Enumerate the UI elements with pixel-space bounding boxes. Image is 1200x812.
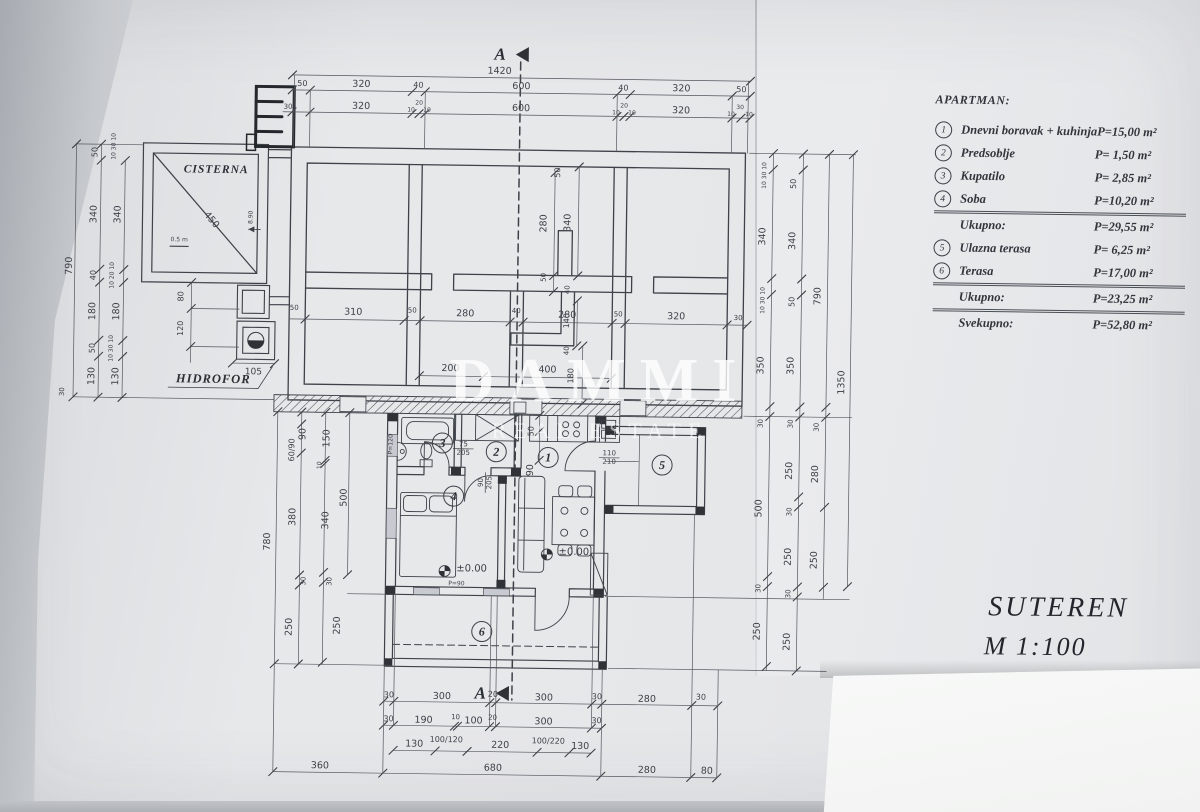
plan-scale: M 1:100: [984, 631, 1129, 663]
dim-label: 50: [736, 85, 746, 94]
dim-label: 120: [176, 321, 185, 336]
legend-row-number: 4: [934, 190, 951, 207]
dim-label: 30: [813, 423, 821, 432]
dim-label: 780: [262, 532, 273, 550]
dim-label: 80: [176, 291, 185, 301]
dim-label: 50: [789, 179, 798, 189]
dim-label: 30: [299, 577, 307, 586]
legend-row-label: Svekupno:: [958, 316, 1092, 333]
legend-row: Ukupno:P=23,25 m²: [933, 282, 1185, 312]
section-letter-bottom: A: [473, 683, 486, 702]
dim-label: 790: [64, 257, 75, 275]
fold-crease: [755, 0, 757, 676]
section-arrow-top: [516, 47, 529, 62]
room-number: 4: [450, 489, 457, 503]
stove-burner-icon: [563, 422, 569, 428]
dim-label: 340: [787, 232, 798, 250]
furniture: [395, 413, 619, 595]
plan-title: SUTEREN: [988, 591, 1129, 624]
dim-label: ±0.00: [558, 547, 589, 558]
closet-icon: [455, 414, 518, 441]
sink-icon: [397, 442, 406, 460]
dim-label: 280: [456, 308, 474, 319]
dim-label: 280: [638, 694, 656, 705]
room-number: 3: [438, 436, 445, 450]
legend-row-value: P=29,55 m²: [1094, 219, 1186, 235]
dim-label: 10 30 10: [107, 335, 114, 362]
dim-label: 30: [384, 690, 394, 699]
hydrophore-label: HIDROFOR: [175, 371, 251, 386]
stairs-detail: [246, 86, 294, 151]
svg-text:210: 210: [602, 458, 615, 466]
dim-label: 50: [540, 273, 548, 282]
dim-label: 30: [784, 589, 792, 598]
dim-label: 100: [464, 715, 482, 726]
legend-row-value: P= 1,50 m²: [1095, 147, 1187, 163]
dim-label: 10: [451, 713, 460, 721]
dim-label: 40: [618, 83, 628, 92]
dim-label: 100/120: [430, 735, 463, 744]
dim-label: 10: [316, 461, 323, 469]
dim-label: 40: [413, 81, 423, 90]
svg-text:205: 205: [457, 449, 470, 457]
dim-label: 680: [484, 763, 502, 774]
legend-row-number: [934, 216, 951, 233]
toilet-icon: [420, 460, 432, 467]
dim-label: 20: [488, 690, 498, 699]
dim-label: 340: [112, 205, 123, 223]
legend-row-number: [932, 314, 949, 331]
dim-label: 50: [297, 79, 307, 88]
dim-label: 100/220: [532, 736, 565, 745]
dim-label: 310: [344, 307, 362, 318]
dim-label: 250: [784, 462, 795, 480]
dim-label: 50: [787, 297, 796, 307]
legend-row-label: Kupatilo: [960, 169, 1094, 186]
dim-label: 130: [110, 367, 121, 385]
dim-label: 1420: [487, 66, 511, 77]
svg-text:205: 205: [485, 476, 493, 489]
dim-label: 1350: [836, 370, 847, 394]
dim-label: 105: [245, 367, 262, 377]
dim-label: 50: [90, 147, 99, 157]
dim-label: 30: [696, 693, 706, 702]
chair-icon: [559, 486, 573, 497]
dim-label: 50: [88, 343, 97, 353]
paper-bottom-edge: [0, 801, 840, 812]
dim-label: 180: [111, 302, 122, 320]
room-number: 5: [659, 458, 665, 472]
dim-label: 40: [512, 307, 521, 315]
dim-label: P=90: [448, 580, 465, 587]
legend-row-number: 6: [933, 262, 950, 279]
scanned-floor-plan-photo: A A: [0, 0, 1200, 812]
dim-label: 180: [87, 302, 98, 320]
dim-label: 250: [752, 622, 763, 640]
dim-label: 20: [488, 714, 497, 722]
legend-row-label: Ukupno:: [959, 290, 1093, 307]
dim-label: 20: [415, 100, 423, 107]
dim-label: 300: [535, 692, 553, 703]
legend-title: APARTMAN:: [935, 92, 1187, 111]
dim-label: 340: [757, 227, 768, 245]
dim-label: 10: [727, 111, 735, 118]
dim-label: 10 30 10: [110, 133, 117, 160]
legend-row-value: P= 2,85 m²: [1094, 170, 1186, 186]
section-letter-top: A: [493, 45, 506, 64]
dim-label: 130: [86, 367, 97, 385]
depth-arrow-icon: [248, 226, 254, 232]
svg-text:90: 90: [477, 478, 485, 487]
dim-label: 300: [534, 716, 552, 727]
dim-label: 30: [383, 714, 393, 723]
legend-row-value: P=15,00 m²: [1097, 125, 1187, 141]
dim-label: 340: [320, 511, 331, 529]
dim-label: 10: [745, 111, 753, 118]
legend-row-value: P=23,25 m²: [1093, 291, 1185, 307]
legend-row-label: Ulazna terasa: [959, 241, 1093, 258]
legend-row-value: P=52,80 m²: [1092, 317, 1184, 333]
room-number: 2: [492, 445, 499, 459]
dim-label: 350: [785, 357, 796, 375]
dim-label: 340: [562, 214, 573, 232]
door-size-label: 75205: [453, 440, 473, 457]
dim-label: 30: [592, 692, 602, 701]
sofa-icon: [518, 476, 545, 572]
legend-row: Ukupno:P=29,55 m²: [934, 210, 1186, 240]
dim-label: 20: [620, 102, 628, 109]
dim-label: 250: [783, 548, 794, 566]
cistern-label: CISTERNA: [184, 163, 249, 176]
table-icon: [552, 497, 595, 546]
dim-label: 300: [433, 691, 451, 702]
dim-label: 90: [525, 464, 536, 476]
dim-label: 250: [782, 633, 793, 651]
dim-label: 10: [407, 106, 415, 113]
dim-label: 50: [408, 306, 417, 314]
legend-row-value: P=10,20 m²: [1094, 193, 1186, 209]
dim-label: 40: [563, 285, 571, 294]
dim-label: 320: [352, 79, 370, 90]
dim-label: 320: [352, 101, 370, 112]
dim-label: 30: [757, 419, 765, 428]
legend-row-label: Dnevni boravak + kuhinja: [961, 123, 1097, 140]
legend: APARTMAN: 1Dnevni boravak + kuhinjaP=15,…: [932, 92, 1187, 337]
dim-label: 10 30 10: [759, 287, 766, 314]
legend-row-label: Terasa: [959, 264, 1093, 281]
dim-label: 320: [672, 83, 690, 94]
dim-label: 50: [614, 310, 623, 318]
dim-label: 280: [538, 214, 549, 232]
dim-label: 30: [58, 387, 66, 396]
room-number: 6: [479, 625, 485, 639]
dim-label: 10: [423, 107, 431, 114]
legend-row-label: Predsoblje: [961, 146, 1095, 163]
dim-label: 190: [414, 715, 432, 726]
svg-text:75: 75: [459, 440, 468, 448]
dim-label: 10 30 10: [761, 162, 768, 189]
dim-label: 80: [701, 766, 713, 777]
bed-icon: [400, 492, 457, 577]
dim-label: 30: [325, 577, 333, 586]
dim-label: 30: [785, 507, 793, 516]
room-number: 1: [545, 450, 551, 464]
pillow-icon: [403, 495, 426, 511]
dim-label: ±0.00: [456, 563, 487, 574]
dim-label: 10 20 10: [109, 262, 116, 289]
dim-label: 600: [512, 81, 530, 92]
legend-row-value: P= 6,25 m²: [1093, 242, 1185, 258]
dim-label: 50: [553, 167, 562, 177]
title-block: SUTEREN M 1:100: [988, 591, 1130, 662]
legend-row-label: Soba: [960, 192, 1094, 209]
dim-label: 140: [562, 313, 571, 328]
dim-label: 200: [441, 363, 459, 374]
legend-row-label: Ukupno:: [960, 218, 1094, 235]
dim-label: 10: [612, 109, 620, 116]
legend-row: Svekupno:P=52,80 m²: [932, 308, 1184, 338]
legend-row-value: P=17,00 m²: [1093, 265, 1185, 281]
dim-label: 280: [638, 765, 656, 776]
dim-label: 380: [287, 508, 298, 526]
dim-label: 250: [332, 616, 343, 634]
dim-label: 30: [284, 103, 293, 111]
svg-text:110: 110: [603, 449, 616, 457]
dim-label: 250: [809, 551, 820, 569]
dim-label: 340: [88, 205, 99, 223]
legend-row-number: 3: [934, 167, 951, 184]
dim-label: 30: [736, 104, 744, 111]
dim-label: 50: [526, 426, 535, 436]
dim-label: 30: [734, 314, 743, 322]
dim-label: 600: [512, 103, 530, 114]
dim-label: 400: [538, 364, 556, 375]
dim-label: 30: [787, 419, 795, 428]
legend-row-number: [933, 288, 950, 305]
overlay-sheet: [820, 664, 1200, 812]
dim-label: 30: [591, 716, 601, 725]
legend-row-number: 5: [933, 239, 950, 256]
dim-label: 320: [667, 311, 685, 322]
legend-row-number: 2: [935, 144, 952, 161]
dim-label: 280: [810, 465, 821, 483]
dim-label: 40: [89, 270, 98, 280]
dim-label: 360: [311, 760, 329, 771]
section-line: A A: [473, 45, 529, 704]
legend-row-number: 1: [935, 121, 952, 138]
dimension-labels: 1420503204060040320503206003203010201010…: [53, 60, 852, 779]
dim-label: 500: [338, 488, 349, 506]
dim-label: P=120: [387, 434, 394, 454]
door-size-label: 110210: [599, 449, 619, 466]
dim-label: 350: [755, 356, 766, 374]
dim-label: 130: [571, 741, 589, 752]
room-numbers: 123456: [430, 433, 673, 644]
dim-label: 50: [290, 304, 299, 312]
dim-label: 790: [812, 287, 823, 305]
dim-label: 150: [321, 429, 332, 447]
dim-label: 180: [566, 368, 575, 383]
dim-label: 60/90: [287, 438, 296, 461]
dim-label: 8.90: [247, 210, 254, 224]
dim-label: 320: [672, 105, 690, 116]
dim-label: 250: [284, 618, 295, 636]
dim-label: 10: [628, 110, 636, 117]
dim-label: 40: [563, 346, 571, 355]
dim-label: 0.5 m: [171, 236, 189, 243]
dim-label: 90: [297, 428, 308, 440]
dim-label: 130: [405, 738, 423, 749]
dim-label: 220: [491, 740, 509, 751]
